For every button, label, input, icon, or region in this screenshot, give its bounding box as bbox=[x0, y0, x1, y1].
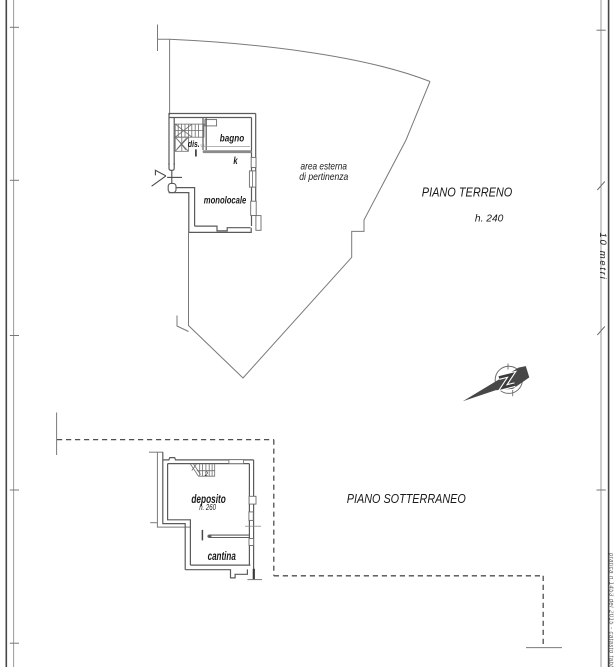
svg-text:monolocale: monolocale bbox=[204, 196, 247, 207]
svg-text:PIANO SOTTERRANEO: PIANO SOTTERRANEO bbox=[347, 491, 466, 506]
svg-text:h. 260: h. 260 bbox=[199, 503, 216, 512]
svg-text:cantina: cantina bbox=[208, 551, 237, 563]
svg-text:di pertinenza: di pertinenza bbox=[299, 171, 348, 183]
svg-text:dis.: dis. bbox=[188, 139, 200, 150]
svg-text:k: k bbox=[233, 156, 238, 167]
svg-text:10 metri: 10 metri bbox=[597, 233, 608, 281]
svg-text:PIANO TERRENO: PIANO TERRENO bbox=[422, 184, 513, 199]
svg-text:pratica n.1453 del 2015 - cata: pratica n.1453 del 2015 - catasto fabbri… bbox=[608, 552, 614, 667]
svg-text:bagno: bagno bbox=[220, 133, 245, 145]
svg-text:2: 2 bbox=[204, 472, 209, 478]
svg-text:h. 240: h. 240 bbox=[475, 213, 504, 225]
